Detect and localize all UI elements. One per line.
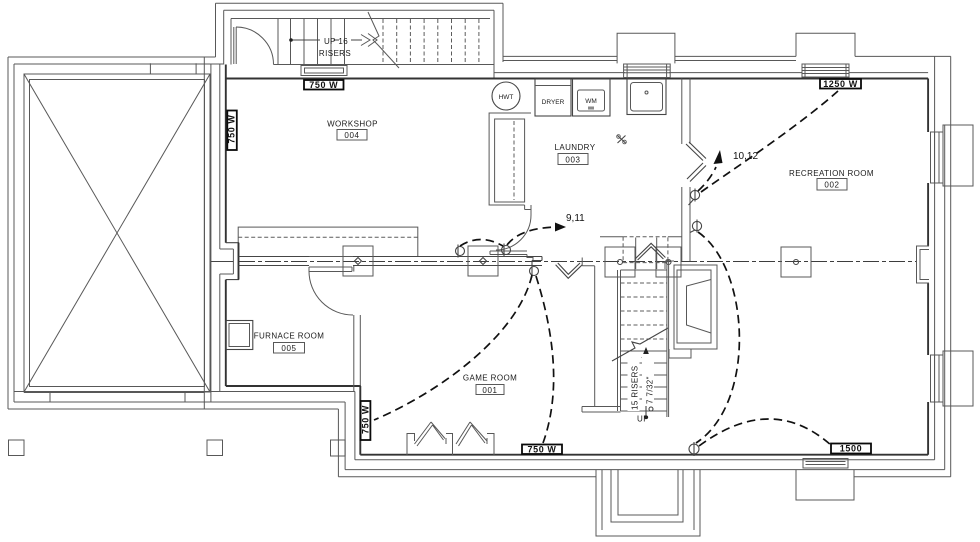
- svg-text:750 W: 750 W: [361, 405, 371, 434]
- svg-text:UP: UP: [637, 415, 649, 424]
- svg-text:WM: WM: [585, 98, 597, 105]
- svg-text:1250 W: 1250 W: [823, 79, 858, 89]
- svg-text:LAUNDRY: LAUNDRY: [555, 143, 596, 152]
- svg-text:001: 001: [482, 386, 497, 395]
- svg-text:005: 005: [281, 344, 296, 353]
- svg-text:RECREATION ROOM: RECREATION ROOM: [789, 169, 874, 178]
- svg-text:1500: 1500: [840, 444, 862, 454]
- svg-text:15 RISERS: 15 RISERS: [631, 365, 640, 410]
- svg-text:750 W: 750 W: [227, 114, 237, 143]
- svg-text:GAME ROOM: GAME ROOM: [463, 374, 517, 383]
- svg-text:750 W: 750 W: [527, 444, 556, 454]
- svg-text:7 7/32": 7 7/32": [646, 376, 655, 404]
- svg-text:DRYER: DRYER: [542, 99, 565, 106]
- svg-text:WORKSHOP: WORKSHOP: [327, 120, 378, 129]
- svg-text:UP 16: UP 16: [324, 37, 348, 46]
- svg-text:004: 004: [344, 131, 359, 140]
- svg-text:003: 003: [565, 156, 580, 165]
- svg-text:HWT: HWT: [499, 94, 514, 101]
- svg-text:FURNACE ROOM: FURNACE ROOM: [254, 332, 325, 341]
- svg-text:RISERS: RISERS: [319, 49, 351, 58]
- svg-text:002: 002: [824, 181, 839, 190]
- svg-text:9,11: 9,11: [566, 213, 585, 224]
- svg-text:750 W: 750 W: [309, 80, 338, 90]
